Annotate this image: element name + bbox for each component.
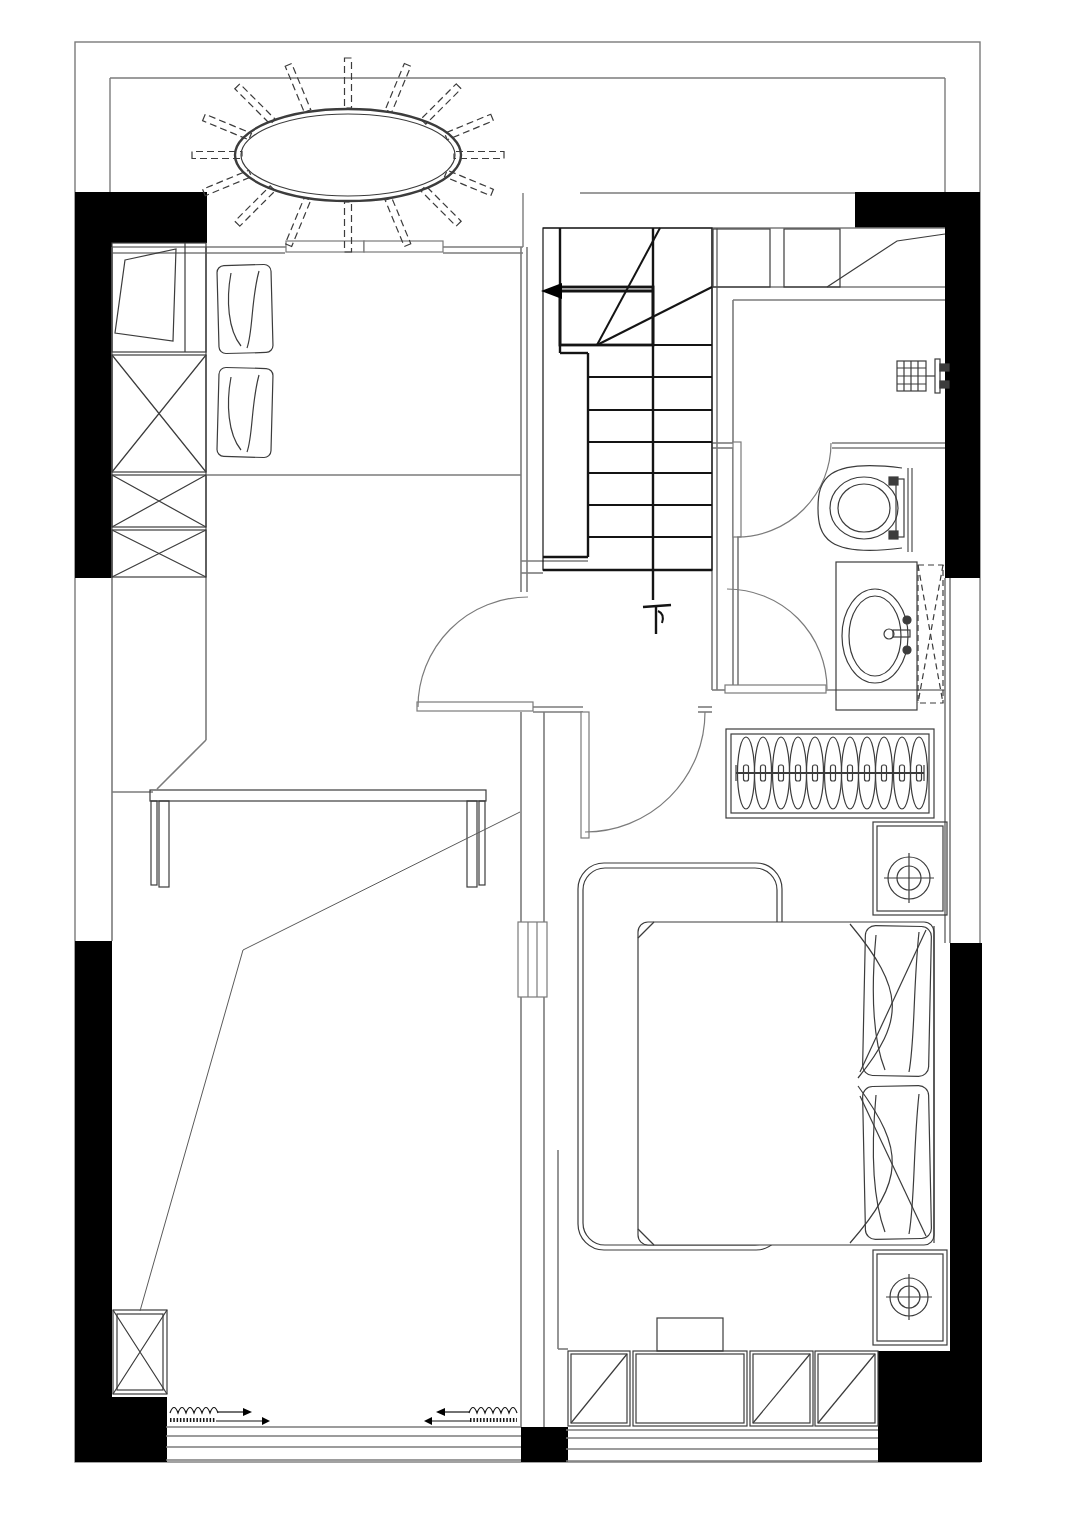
window-top-left xyxy=(286,241,364,252)
stair-down-label: 下 xyxy=(639,596,673,636)
door-leaf-bedroom xyxy=(581,712,589,838)
floor-plan-page: 下 xyxy=(0,0,1080,1528)
door-leaf-left-room xyxy=(417,702,533,711)
floor-plan-drawing: 下 xyxy=(0,0,1080,1528)
door-leaf-bathroom xyxy=(725,685,826,693)
window-mid-wall xyxy=(518,922,547,997)
door-leaf-shower xyxy=(733,442,741,537)
window-top-right xyxy=(364,241,443,252)
duvet xyxy=(638,922,934,1245)
